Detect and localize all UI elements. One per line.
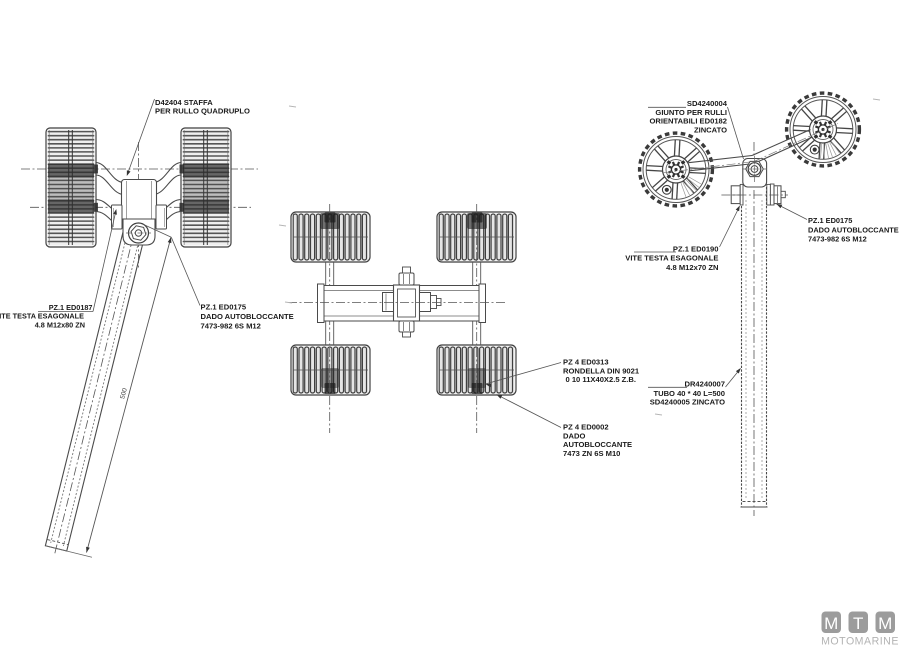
svg-text:VITE TESTA ESAGONALE: VITE TESTA ESAGONALE <box>625 254 718 263</box>
svg-text:DR4240007: DR4240007 <box>684 380 725 389</box>
svg-text:4.8 M12x70 ZN: 4.8 M12x70 ZN <box>666 263 718 272</box>
svg-text:ORIENTABILI ED0182: ORIENTABILI ED0182 <box>649 117 727 126</box>
svg-text:ZINCATO: ZINCATO <box>694 126 727 135</box>
svg-text:0 10 11X40X2.5 Z.B.: 0 10 11X40X2.5 Z.B. <box>566 375 637 384</box>
svg-text:T: T <box>853 614 863 633</box>
svg-text:M: M <box>878 614 892 633</box>
svg-text:DADO: DADO <box>563 431 585 440</box>
svg-text:MOTOMARINE: MOTOMARINE <box>821 636 899 648</box>
svg-text:AUTOBLOCCANTE: AUTOBLOCCANTE <box>563 440 632 449</box>
svg-text:7473-982 6S M12: 7473-982 6S M12 <box>808 235 867 244</box>
svg-text:PZ 4 ED0002: PZ 4 ED0002 <box>563 423 609 432</box>
svg-text:PZ.1 ED0190: PZ.1 ED0190 <box>673 244 719 253</box>
svg-text:PZ.1 ED0175: PZ.1 ED0175 <box>201 302 247 311</box>
svg-text:DADO AUTOBLOCCANTE: DADO AUTOBLOCCANTE <box>808 225 899 234</box>
svg-text:RONDELLA DIN 9021: RONDELLA DIN 9021 <box>563 366 640 375</box>
svg-text:DADO AUTOBLOCCANTE: DADO AUTOBLOCCANTE <box>201 312 294 321</box>
svg-text:7473-982 6S M12: 7473-982 6S M12 <box>201 321 261 330</box>
svg-text:7473 ZN 6S M10: 7473 ZN 6S M10 <box>563 449 620 458</box>
svg-text:SD4240005 ZINCATO: SD4240005 ZINCATO <box>650 398 725 407</box>
svg-text:4.8 M12x80 ZN: 4.8 M12x80 ZN <box>35 320 85 329</box>
svg-text:SD4240004: SD4240004 <box>687 99 728 108</box>
svg-text:PZ.1 ED0175: PZ.1 ED0175 <box>808 216 852 225</box>
svg-text:PER RULLO QUADRUPLO: PER RULLO QUADRUPLO <box>155 107 250 116</box>
svg-text:PZ.1 ED0187: PZ.1 ED0187 <box>49 303 93 312</box>
svg-text:M: M <box>824 614 838 633</box>
svg-text:PZ 4 ED0313: PZ 4 ED0313 <box>563 357 609 366</box>
svg-text:TUBO 40 * 40 L=500: TUBO 40 * 40 L=500 <box>653 389 725 398</box>
svg-text:GIUNTO PER RULLI: GIUNTO PER RULLI <box>655 108 727 117</box>
